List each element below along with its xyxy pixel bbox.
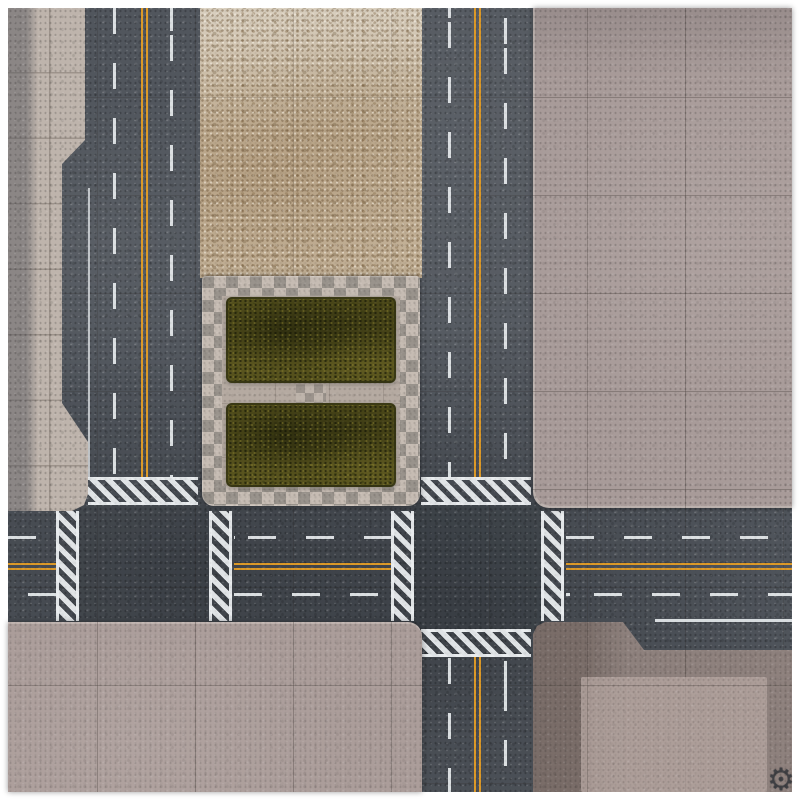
lane-dashes — [448, 658, 451, 792]
lane-dashes — [566, 593, 792, 596]
game-mat: ⚙ — [0, 0, 800, 800]
main-intersection-shade — [412, 503, 543, 631]
crosswalk-right-road-south — [421, 629, 531, 657]
lane-dashes — [8, 536, 56, 539]
grass-texture — [228, 405, 394, 485]
dirt-grid-seams — [200, 8, 422, 278]
concrete-grid-seams — [581, 677, 767, 792]
dirt-field — [200, 8, 422, 278]
lane-edge-line — [88, 188, 90, 478]
concrete-texture — [581, 677, 767, 792]
crosswalk-cross-street-west — [209, 511, 232, 621]
crosswalk-cross-street-east — [391, 511, 414, 621]
lane-edge-line-east — [655, 619, 792, 622]
concrete-grid-seams — [8, 622, 422, 792]
double-yellow-line-right-road-top — [474, 8, 481, 478]
crosswalk-cross-street-far-west — [56, 511, 79, 621]
double-yellow-line-right-road-bottom — [474, 656, 481, 792]
crosswalk-right-road-north — [421, 477, 531, 505]
double-yellow-line-cross-street-east — [566, 563, 792, 570]
concrete-light-patch — [581, 677, 767, 792]
concrete-texture — [8, 622, 422, 792]
grass-texture — [228, 299, 394, 381]
left-intersection-shade — [79, 505, 210, 623]
grass-patch-2 — [226, 403, 396, 487]
maker-gear-logo-icon: ⚙ — [763, 762, 799, 798]
plaza-walkway-tiles — [296, 384, 326, 403]
grass-patch-1 — [226, 297, 396, 383]
lane-dashes — [234, 593, 391, 596]
lane-dashes — [113, 8, 116, 478]
lane-dashes — [504, 658, 507, 792]
crosswalk-cross-street-far-east — [541, 511, 564, 621]
crosswalk-left-road — [88, 477, 198, 505]
concrete-top-right — [533, 8, 792, 508]
concrete-bottom-left — [8, 622, 422, 792]
lane-dashes — [504, 8, 507, 478]
dirt-texture — [200, 8, 422, 278]
lane-dashes — [8, 593, 56, 596]
double-yellow-line-cross-street-west — [8, 563, 56, 570]
concrete-grid-seams — [533, 8, 792, 508]
lane-dashes — [448, 8, 451, 478]
lane-dashes — [566, 536, 792, 539]
concrete-texture — [533, 8, 792, 508]
lane-dashes — [234, 536, 391, 539]
double-yellow-line-left-road — [141, 8, 148, 478]
double-yellow-line-cross-street-mid — [234, 563, 391, 570]
lane-dashes — [170, 8, 173, 478]
